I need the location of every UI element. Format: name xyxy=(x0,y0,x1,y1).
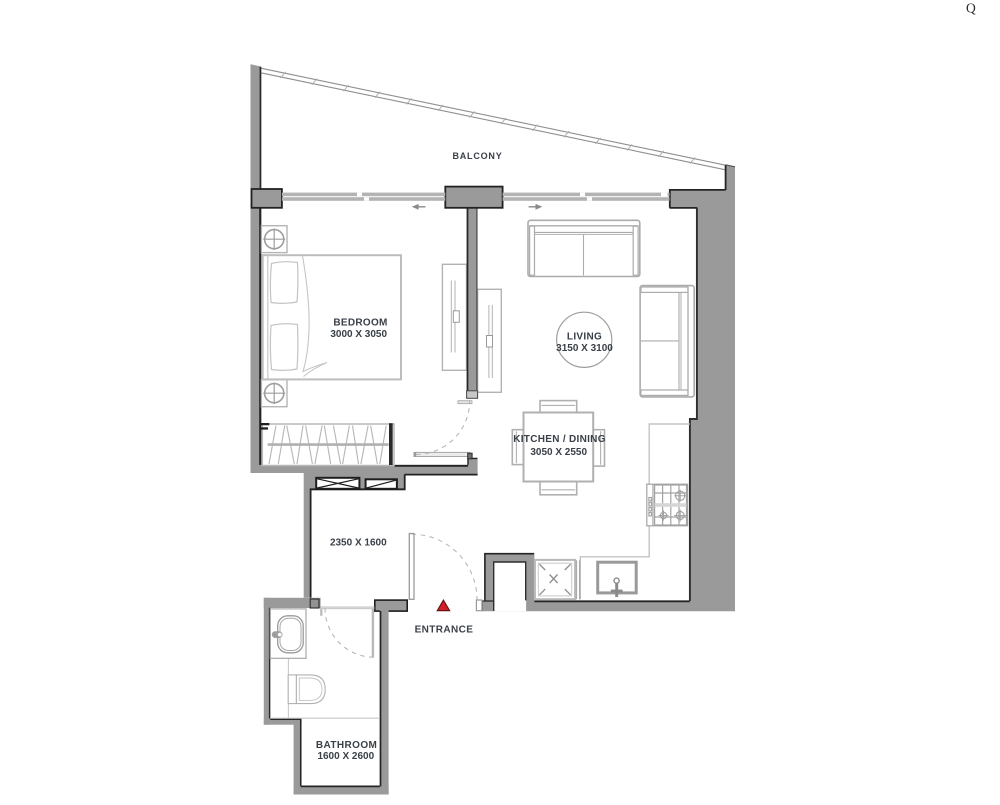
svg-text:BATHROOM: BATHROOM xyxy=(316,740,377,751)
svg-text:BALCONY: BALCONY xyxy=(452,151,502,161)
svg-text:1600 X 2600: 1600 X 2600 xyxy=(317,751,374,762)
svg-text:Q: Q xyxy=(966,1,976,16)
svg-text:3000 X 3050: 3000 X 3050 xyxy=(330,329,387,340)
svg-text:3050 X 2550: 3050 X 2550 xyxy=(530,447,587,458)
svg-text:3150 X 3100: 3150 X 3100 xyxy=(556,343,613,354)
svg-text:LIVING: LIVING xyxy=(567,331,602,342)
svg-text:BEDROOM: BEDROOM xyxy=(333,317,387,328)
svg-text:2350 X 1600: 2350 X 1600 xyxy=(330,538,387,549)
svg-text:ENTRANCE: ENTRANCE xyxy=(415,625,474,636)
svg-text:KITCHEN / DINING: KITCHEN / DINING xyxy=(513,434,606,445)
